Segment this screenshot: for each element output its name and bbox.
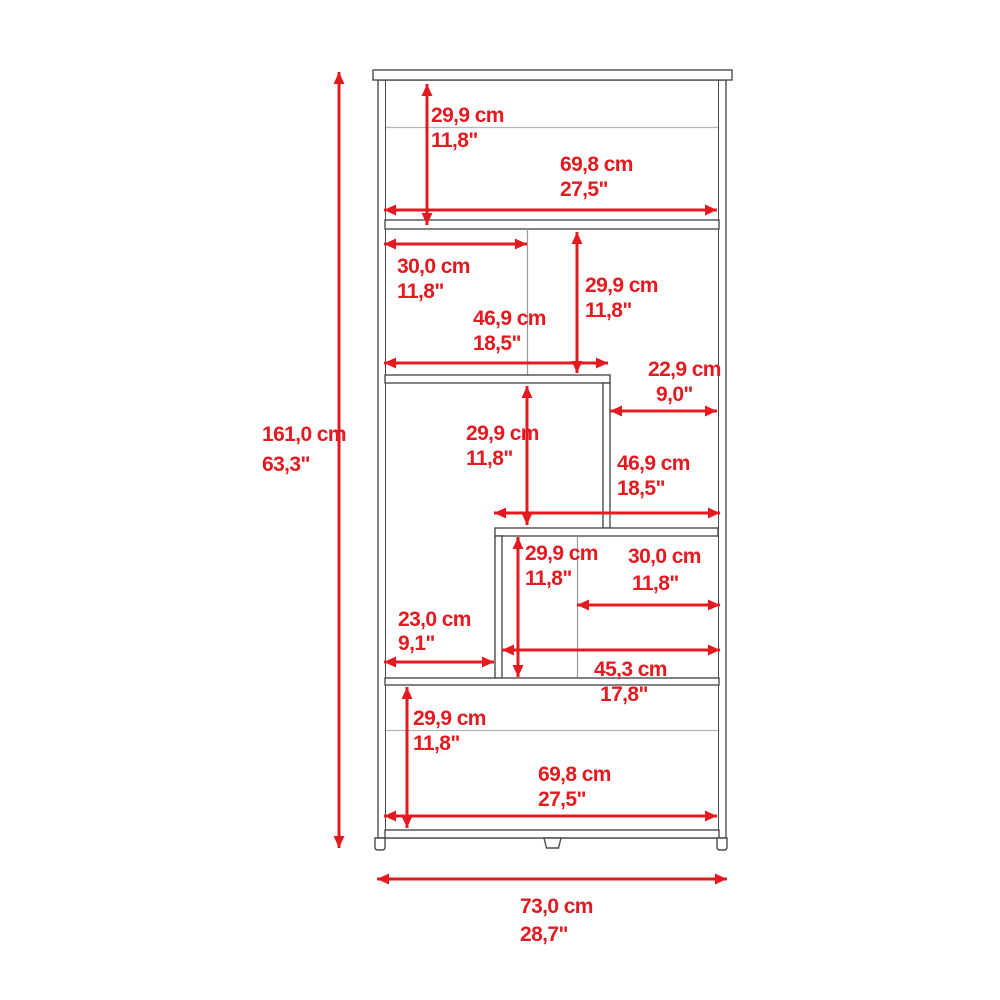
label-cube4-width-cm: 45,3 cm <box>594 658 667 681</box>
label-cube4-height-in: 11,8" <box>525 567 572 590</box>
label-niche-left-width-in: 9,1" <box>398 632 435 655</box>
dimension-diagram-page: 161,0 cm 63,3" 29,9 cm 11,8" 69,8 cm 27,… <box>0 0 1000 1000</box>
right-leg <box>717 838 727 850</box>
left-leg <box>375 838 385 850</box>
cabinet-bottom-board <box>385 830 719 838</box>
label-total-height-in: 63,3" <box>262 453 310 476</box>
label-cube4-right-width-cm: 30,0 cm <box>628 545 701 568</box>
cube4-left-wall <box>495 536 502 678</box>
label-cube4-width-in: 17,8" <box>600 683 648 706</box>
label-cube2-left-width-cm: 30,0 cm <box>397 255 470 278</box>
shelf-step <box>385 375 610 383</box>
cabinet-top-board <box>373 70 732 80</box>
label-total-height-cm: 161,0 cm <box>262 423 346 446</box>
step-wall <box>603 383 610 528</box>
label-cube5-width-in: 27,5" <box>538 788 586 811</box>
label-niche-left-width-cm: 23,0 cm <box>398 608 471 631</box>
label-niche-right-lower-cm: 46,9 cm <box>617 452 690 475</box>
cabinet-dimension-drawing: 161,0 cm 63,3" 29,9 cm 11,8" 69,8 cm 27,… <box>0 0 1000 1000</box>
label-cube3-height-cm: 29,9 cm <box>466 422 539 445</box>
label-cube2-height-in: 11,8" <box>585 299 632 322</box>
label-cube5-height-in: 11,8" <box>413 732 460 755</box>
label-cube4-right-width-in: 11,8" <box>632 572 679 595</box>
label-niche-right-lower-in: 18,5" <box>617 477 665 500</box>
label-cube1-height-cm: 29,9 cm <box>431 104 504 127</box>
label-total-width-in: 28,7" <box>520 923 568 946</box>
label-cube1-width-cm: 69,8 cm <box>560 153 633 176</box>
label-cube2-width-in: 18,5" <box>473 332 521 355</box>
shelf-5 <box>385 678 719 685</box>
label-cube5-width-cm: 69,8 cm <box>538 763 611 786</box>
label-cube1-width-in: 27,5" <box>560 178 608 201</box>
shelf-1 <box>385 220 719 229</box>
label-cube2-height-cm: 29,9 cm <box>585 274 658 297</box>
label-niche-right-width-in: 9,0" <box>656 383 693 406</box>
label-niche-right-width-cm: 22,9 cm <box>648 358 721 381</box>
label-cube3-height-in: 11,8" <box>466 447 513 470</box>
label-cube4-height-cm: 29,9 cm <box>525 542 598 565</box>
label-cube5-height-cm: 29,9 cm <box>413 707 486 730</box>
label-cube1-height-in: 11,8" <box>431 129 478 152</box>
label-cube2-width-cm: 46,9 cm <box>473 307 546 330</box>
label-cube2-left-width-in: 11,8" <box>397 280 444 303</box>
label-total-width-cm: 73,0 cm <box>520 895 593 918</box>
shelf-cube4-top <box>495 528 718 536</box>
center-foot <box>544 838 561 848</box>
